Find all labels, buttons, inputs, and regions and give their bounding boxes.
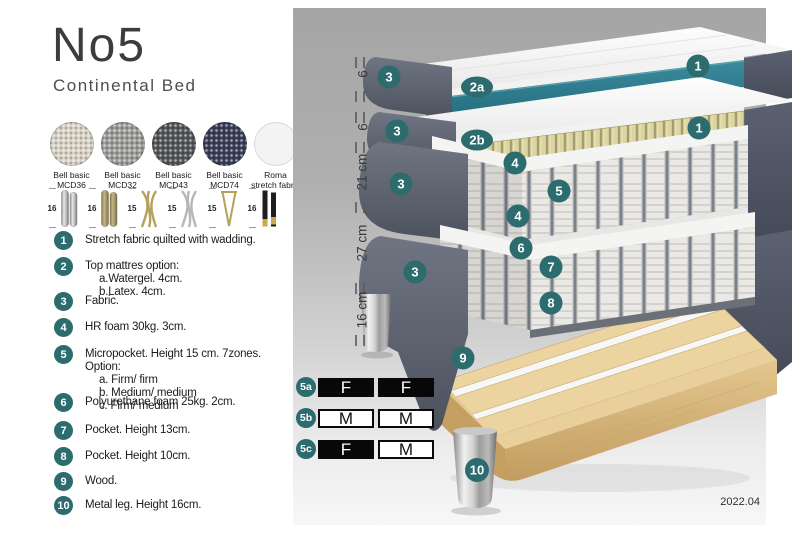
leg-height: 16 — [248, 204, 257, 213]
legend-line: HR foam 30kg. 3cm. — [85, 321, 186, 334]
fabric-swatch-circle — [152, 122, 196, 166]
fabric-swatch-circle — [254, 122, 298, 166]
legend-line: Stretch fabric quilted with wadding. — [85, 234, 256, 247]
legend-line: Top mattres option: — [85, 260, 182, 273]
product-title: No5 — [52, 22, 146, 70]
leg-option: 16 — [244, 186, 284, 232]
legend-line: Fabric. — [85, 295, 119, 308]
legend-item-4: 4 HR foam 30kg. 3cm. — [54, 318, 186, 337]
legend-line: Metal leg. Height 16cm. — [85, 499, 201, 512]
fabric-swatch: Bell basicMCD74 — [199, 122, 250, 190]
fabric-swatch: Bell basicMCD36 — [46, 122, 97, 190]
legend-badge-9: 9 — [54, 472, 73, 491]
legend-line: Wood. — [85, 475, 117, 488]
firmness-badge-5c: 5c — [296, 439, 316, 459]
leg-hairpin-icon — [218, 189, 240, 229]
legend-badge-4: 4 — [54, 318, 73, 337]
legend-line: Micropocket. Height 15 cm. 7zones. Optio… — [85, 348, 293, 374]
legend-line: Polyurethane foam 25kg. 2cm. — [85, 396, 235, 409]
legend-item-8: 8 Pocket. Height 10cm. — [54, 447, 190, 466]
legend-line: a.Watergel. 4cm. — [85, 273, 182, 286]
leg-twist-silver-icon — [178, 189, 200, 229]
leg-cylinder-brass-icon — [98, 189, 120, 229]
firmness-cell: M — [378, 440, 434, 459]
leg-option: 15 — [164, 186, 204, 232]
firmness-cell: M — [318, 409, 374, 428]
legend-badge-10: 10 — [54, 496, 73, 515]
fabric-swatch-circle — [203, 122, 247, 166]
legend-badge-8: 8 — [54, 447, 73, 466]
leg-twist-gold-icon — [138, 189, 160, 229]
leg-height: 15 — [208, 204, 217, 213]
firmness-badge-5a: 5a — [296, 377, 316, 397]
legend-badge-2: 2 — [54, 257, 73, 276]
leg-option: 16 — [84, 186, 124, 232]
leg-height: 15 — [128, 204, 137, 213]
leg-height: 16 — [48, 204, 57, 213]
fabric-swatch-row: Bell basicMCD36 Bell basicMCD32 Bell bas… — [46, 122, 301, 190]
leg-cylinder-silver-icon — [58, 189, 80, 229]
product-subtitle: Continental Bed — [53, 76, 196, 96]
fabric-swatch: Bell basicMCD43 — [148, 122, 199, 190]
leg-options-row: 16 16 15 15 — [44, 186, 284, 232]
leg-height: 16 — [88, 204, 97, 213]
legend-item-6: 6 Polyurethane foam 25kg. 2cm. — [54, 393, 235, 412]
legend-line: Pocket. Height 13cm. — [85, 424, 190, 437]
page: No5 Continental Bed Bell basicMCD36 Bell… — [0, 0, 800, 533]
leg-option: 16 — [44, 186, 84, 232]
swatch-name: Bell basic — [53, 170, 89, 180]
legend-badge-3: 3 — [54, 292, 73, 311]
leg-height: 15 — [168, 204, 177, 213]
firmness-cell: F — [318, 378, 374, 397]
legend-badge-1: 1 — [54, 231, 73, 250]
firmness-row-5b: 5b M M — [296, 408, 434, 428]
legend-badge-6: 6 — [54, 393, 73, 412]
legend-item-9: 9 Wood. — [54, 472, 117, 491]
fabric-swatch-circle — [50, 122, 94, 166]
legend-item-1: 1 Stretch fabric quilted with wadding. — [54, 231, 256, 250]
info-panel: No5 Continental Bed Bell basicMCD36 Bell… — [0, 0, 293, 533]
legend-line: Pocket. Height 10cm. — [85, 450, 190, 463]
firmness-row-5a: 5a F F — [296, 377, 434, 397]
firmness-badge-5b: 5b — [296, 408, 316, 428]
legend-item-3: 3 Fabric. — [54, 292, 119, 311]
legend-line: a. Firm/ firm — [85, 374, 293, 387]
firmness-row-5c: 5c F M — [296, 439, 434, 459]
firmness-cell: F — [318, 440, 374, 459]
swatch-name: Bell basic — [155, 170, 191, 180]
legend-badge-7: 7 — [54, 421, 73, 440]
firmness-cell: F — [378, 378, 434, 397]
fabric-swatch: Bell basicMCD32 — [97, 122, 148, 190]
leg-option: 15 — [204, 186, 244, 232]
legend-badge-5: 5 — [54, 345, 73, 364]
firmness-cell: M — [378, 409, 434, 428]
swatch-name: Bell basic — [104, 170, 140, 180]
fabric-swatch-circle — [101, 122, 145, 166]
leg-option: 15 — [124, 186, 164, 232]
leg-block-black-icon — [258, 189, 280, 229]
legend-item-10: 10 Metal leg. Height 16cm. — [54, 496, 201, 515]
legend-item-7: 7 Pocket. Height 13cm. — [54, 421, 190, 440]
swatch-name: Bell basic — [206, 170, 242, 180]
version-stamp: 2022.04 — [700, 496, 760, 508]
